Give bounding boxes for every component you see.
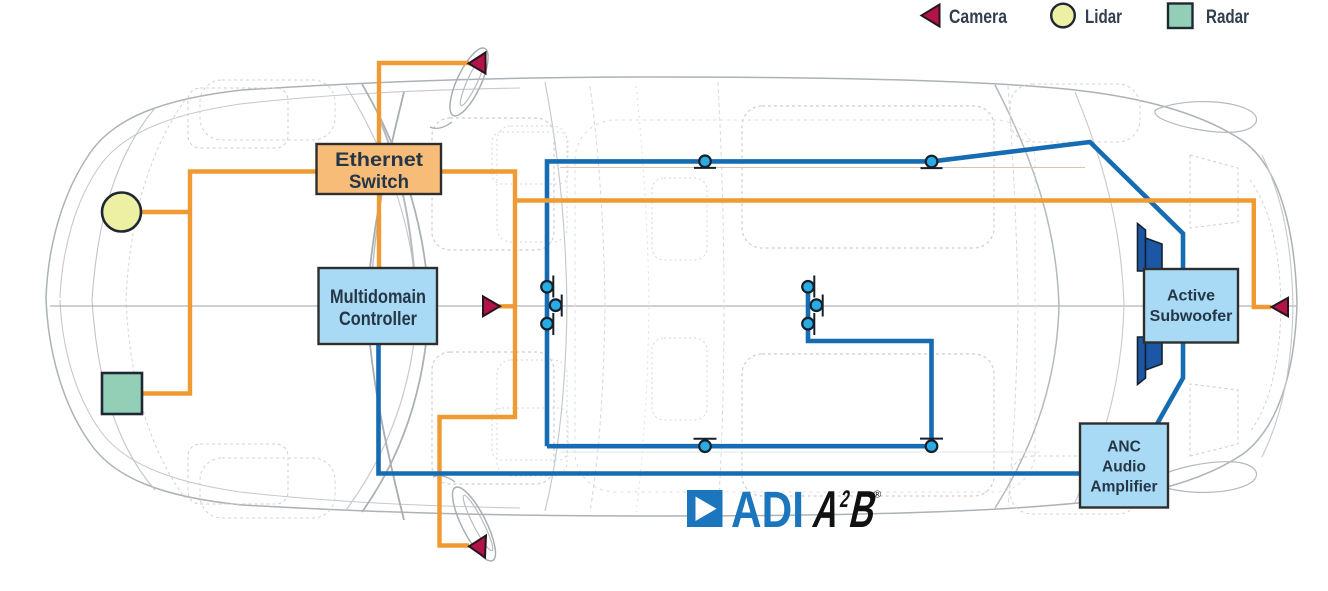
svg-text:Controller: Controller — [339, 309, 418, 330]
svg-text:Multidomain: Multidomain — [330, 287, 426, 308]
svg-text:Subwoofer: Subwoofer — [1150, 308, 1233, 325]
svg-text:ANC: ANC — [1107, 439, 1141, 456]
svg-text:Active: Active — [1167, 288, 1215, 305]
svg-text:®: ® — [874, 489, 882, 501]
svg-text:Radar: Radar — [1206, 7, 1249, 28]
svg-text:Switch: Switch — [349, 171, 409, 193]
svg-text:Amplifier: Amplifier — [1090, 479, 1157, 496]
svg-text:ADI: ADI — [731, 481, 804, 538]
svg-text:Lidar: Lidar — [1085, 7, 1122, 28]
svg-text:Ethernet: Ethernet — [335, 149, 424, 171]
svg-text:Audio: Audio — [1102, 459, 1146, 476]
svg-text:Camera: Camera — [949, 7, 1007, 28]
